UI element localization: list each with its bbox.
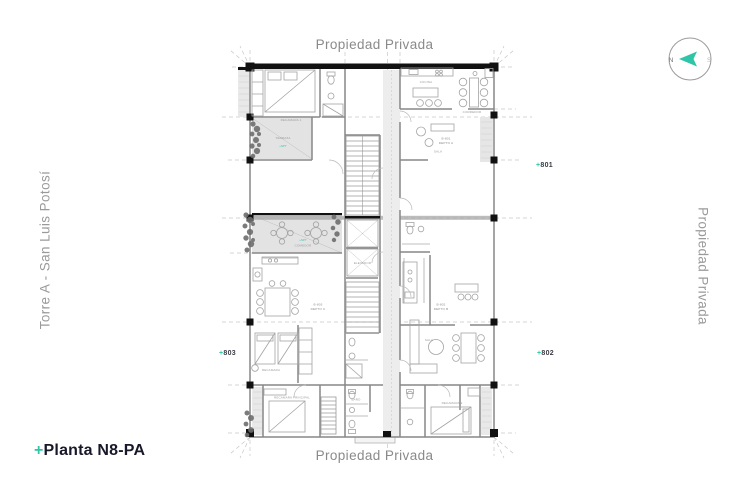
unit-area-label: B-801 [441,137,450,141]
room-label: RECAMARA 2 [442,401,463,405]
shaded-zones [238,70,494,443]
level-marker: +NPT [299,238,307,242]
room-label: ELEVADOR [354,261,372,265]
room-label: COMEDOR [295,244,312,248]
room-label: COCINA [420,80,433,84]
room-label: RECAMARA 1 [281,118,302,122]
room-label: RECAMARA PRINCIPAL [274,396,310,400]
page: Propiedad Privada Propiedad Privada Torr… [0,0,749,500]
level-marker: +NPT [279,144,287,148]
unit-area-label: B-803 [313,303,322,307]
unit-area-label: DEPTO C [311,307,326,311]
room-label: BAÑO [351,397,361,402]
room-label: SALA [434,150,442,154]
unit-area-label: B-802 [436,303,445,307]
room-label: SALA [425,338,433,342]
unit-area-label: DEPTO A [439,141,454,145]
room-label: CORREDOR [463,110,482,114]
room-label: TERRAZA [275,136,290,140]
floor-plan: RECAMARA 1 TERRAZA +NPT COCINA B-801 DEP… [0,0,749,500]
room-label: RECAMARA [262,368,280,372]
unit-area-label: DEPTO B [434,307,449,311]
